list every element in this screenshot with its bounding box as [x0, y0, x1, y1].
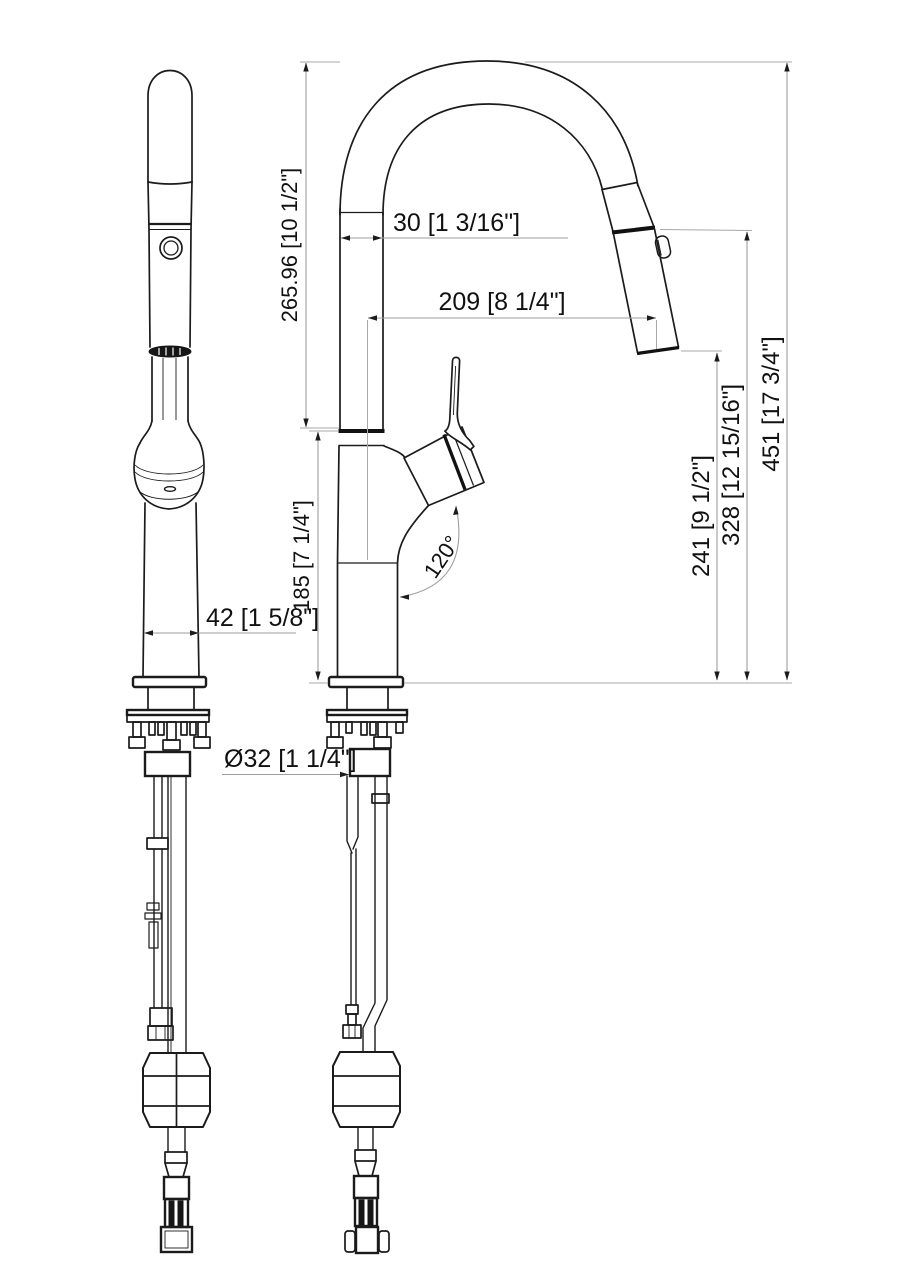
side-supply-fitting1 [346, 1005, 358, 1014]
head-outlet-face [637, 348, 679, 354]
handle-lever [445, 357, 474, 449]
front-head-band-sides [148, 182, 192, 229]
side-body-right-scurve [398, 506, 429, 678]
front-qc-bar1 [169, 1201, 174, 1226]
head-spray-button [654, 235, 671, 259]
front-joint-bands [135, 465, 203, 499]
side-view [327, 61, 679, 1253]
front-view [127, 71, 210, 1253]
front-head-body [149, 230, 191, 348]
spray-button-outer [160, 237, 182, 259]
front-deck-plate [133, 677, 206, 687]
front-supply-hose [154, 776, 162, 1008]
dim-overall-height-label: 451 [17 3/4"] [758, 336, 785, 471]
dim-outlet-height-label: 241 [9 1/2"] [688, 455, 715, 577]
side-pulldown-hose [363, 776, 387, 1052]
front-qc-latch [165, 1199, 188, 1227]
side-qc-hose [358, 1127, 373, 1150]
front-body-column [143, 503, 199, 677]
side-neck-to-collar [384, 446, 405, 458]
drawing-sheet: 30 [1 3/16"] 209 [8 1/4"] 265.96 [10 1/2… [0, 0, 909, 1285]
side-body-left [338, 446, 340, 677]
front-head-joint-line [148, 182, 192, 184]
dim-handle-angle-label: 120° [419, 531, 465, 583]
front-qc-collar [165, 1152, 187, 1163]
front-neck-flare [140, 421, 200, 443]
front-weight-lines [143, 1053, 210, 1127]
side-qc-end [356, 1227, 378, 1253]
spray-button-inner [164, 241, 178, 255]
side-qc-wing-left [345, 1231, 355, 1252]
dim-seam-height-label: 328 [12 15/16"] [718, 384, 745, 546]
front-connection-housing [145, 752, 190, 776]
front-joint-slot [165, 487, 176, 492]
front-qc-bar2 [178, 1201, 183, 1226]
side-qc-bar2 [368, 1200, 373, 1225]
side-supply-fitting2 [348, 1014, 356, 1025]
front-hose-clips [145, 903, 161, 948]
dim-rise-label: 265.96 [10 1/2"] [277, 168, 302, 323]
aerator-face [149, 346, 191, 357]
dim-body-height-label: 185 [7 1/4"] [289, 500, 314, 612]
front-qc-hose [168, 1127, 185, 1152]
head-sides [614, 229, 679, 353]
front-qc-body [164, 1177, 189, 1199]
front-qc-taper [165, 1163, 187, 1177]
front-qc-end-inner [165, 1231, 188, 1248]
head-receiver-sides [602, 183, 654, 232]
technical-drawing-svg: 30 [1 3/16"] 209 [8 1/4"] 265.96 [10 1/2… [0, 0, 909, 1285]
spout-inner-arc [383, 104, 602, 215]
side-qc-bar1 [359, 1200, 364, 1225]
side-shank [347, 687, 388, 710]
dim-shank-diameter-label: Ø32 [1 1/4"] [224, 745, 357, 773]
front-neck-highlights [163, 358, 176, 420]
dimension-annotations: 30 [1 3/16"] 209 [8 1/4"] 265.96 [10 1/2… [144, 62, 792, 777]
side-deck-plate [329, 677, 403, 687]
front-neck [152, 357, 188, 421]
side-qc-wing-right [379, 1231, 389, 1252]
head-top-edge [602, 183, 637, 190]
front-mounting-bolts [129, 722, 210, 750]
side-supply-nut-facets [349, 1025, 355, 1038]
head-seam [612, 228, 655, 233]
front-shank [148, 687, 194, 710]
side-hose-weight [333, 1052, 400, 1127]
dim-reach-label: 209 [8 1/4"] [438, 288, 565, 316]
ext-head-seam [660, 230, 752, 231]
dim-body-width-label: 42 [1 5/8"] [206, 604, 319, 632]
side-qc-latch [355, 1198, 377, 1226]
dim-spout-width-label: 30 [1 3/16"] [393, 209, 520, 237]
ext-reach [368, 320, 657, 560]
front-hose-fitting [147, 838, 168, 849]
side-qc-taper [355, 1161, 376, 1176]
side-supply-tube [347, 776, 358, 1005]
side-supply-nut [343, 1025, 361, 1038]
front-supply-nut [148, 1026, 173, 1040]
side-qc-body [354, 1176, 378, 1198]
side-weight-lines [333, 1076, 400, 1106]
side-qc-collar [355, 1150, 376, 1161]
front-supply-nut-facets [156, 1026, 165, 1040]
front-spray-head-top [148, 71, 192, 183]
